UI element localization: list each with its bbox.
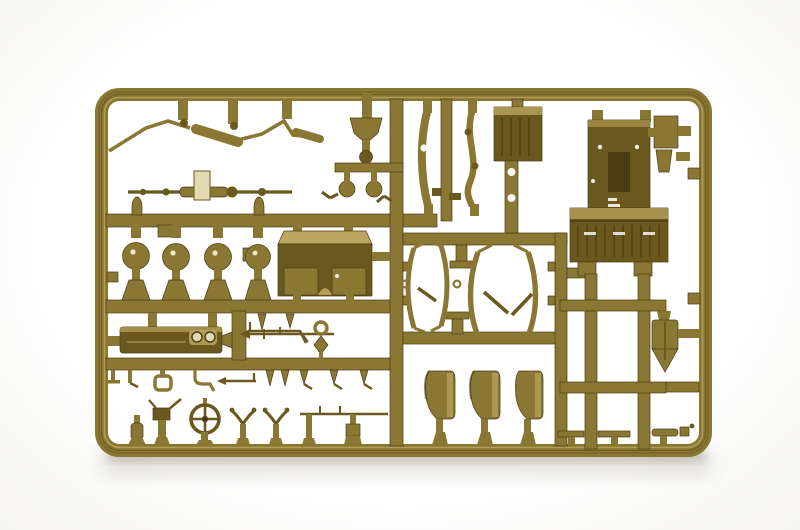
- windshield-bows-part: [402, 242, 536, 340]
- dashboard-part: [107, 313, 232, 353]
- steering-wheel-part: [191, 398, 219, 445]
- front-axle-part: [128, 171, 292, 215]
- bottom-rail-fittings: [558, 424, 694, 446]
- road-wheels-part: [122, 225, 271, 300]
- engine-hood-part: [278, 226, 390, 303]
- bottle-fitting-part: [128, 415, 146, 445]
- seat-back: [470, 371, 500, 445]
- accessory-box-part: [648, 116, 691, 172]
- ladder-frame-part: [560, 262, 666, 449]
- tow-bar-part: [250, 322, 306, 343]
- tie-rod-part: [240, 314, 334, 359]
- exhaust-pipe-part: [109, 99, 323, 151]
- studio-photo-background: [0, 0, 800, 530]
- fork-bracket: [263, 408, 290, 445]
- gun-mount-part: [149, 399, 181, 445]
- road-wheel: [122, 225, 150, 300]
- seat-back: [515, 371, 543, 445]
- fork-brackets-part: [230, 408, 290, 445]
- road-wheel: [204, 225, 232, 300]
- seat-back: [425, 371, 455, 445]
- road-wheel: [245, 225, 271, 300]
- linkage-rod-part: [300, 406, 388, 445]
- shovel-part: [652, 311, 700, 372]
- radiator-panel-part: [494, 107, 542, 161]
- hanging-fittings-row: [106, 370, 372, 391]
- sprue-photo: [0, 0, 800, 530]
- seat-backs-part: [425, 371, 543, 445]
- fork-bracket: [230, 408, 257, 445]
